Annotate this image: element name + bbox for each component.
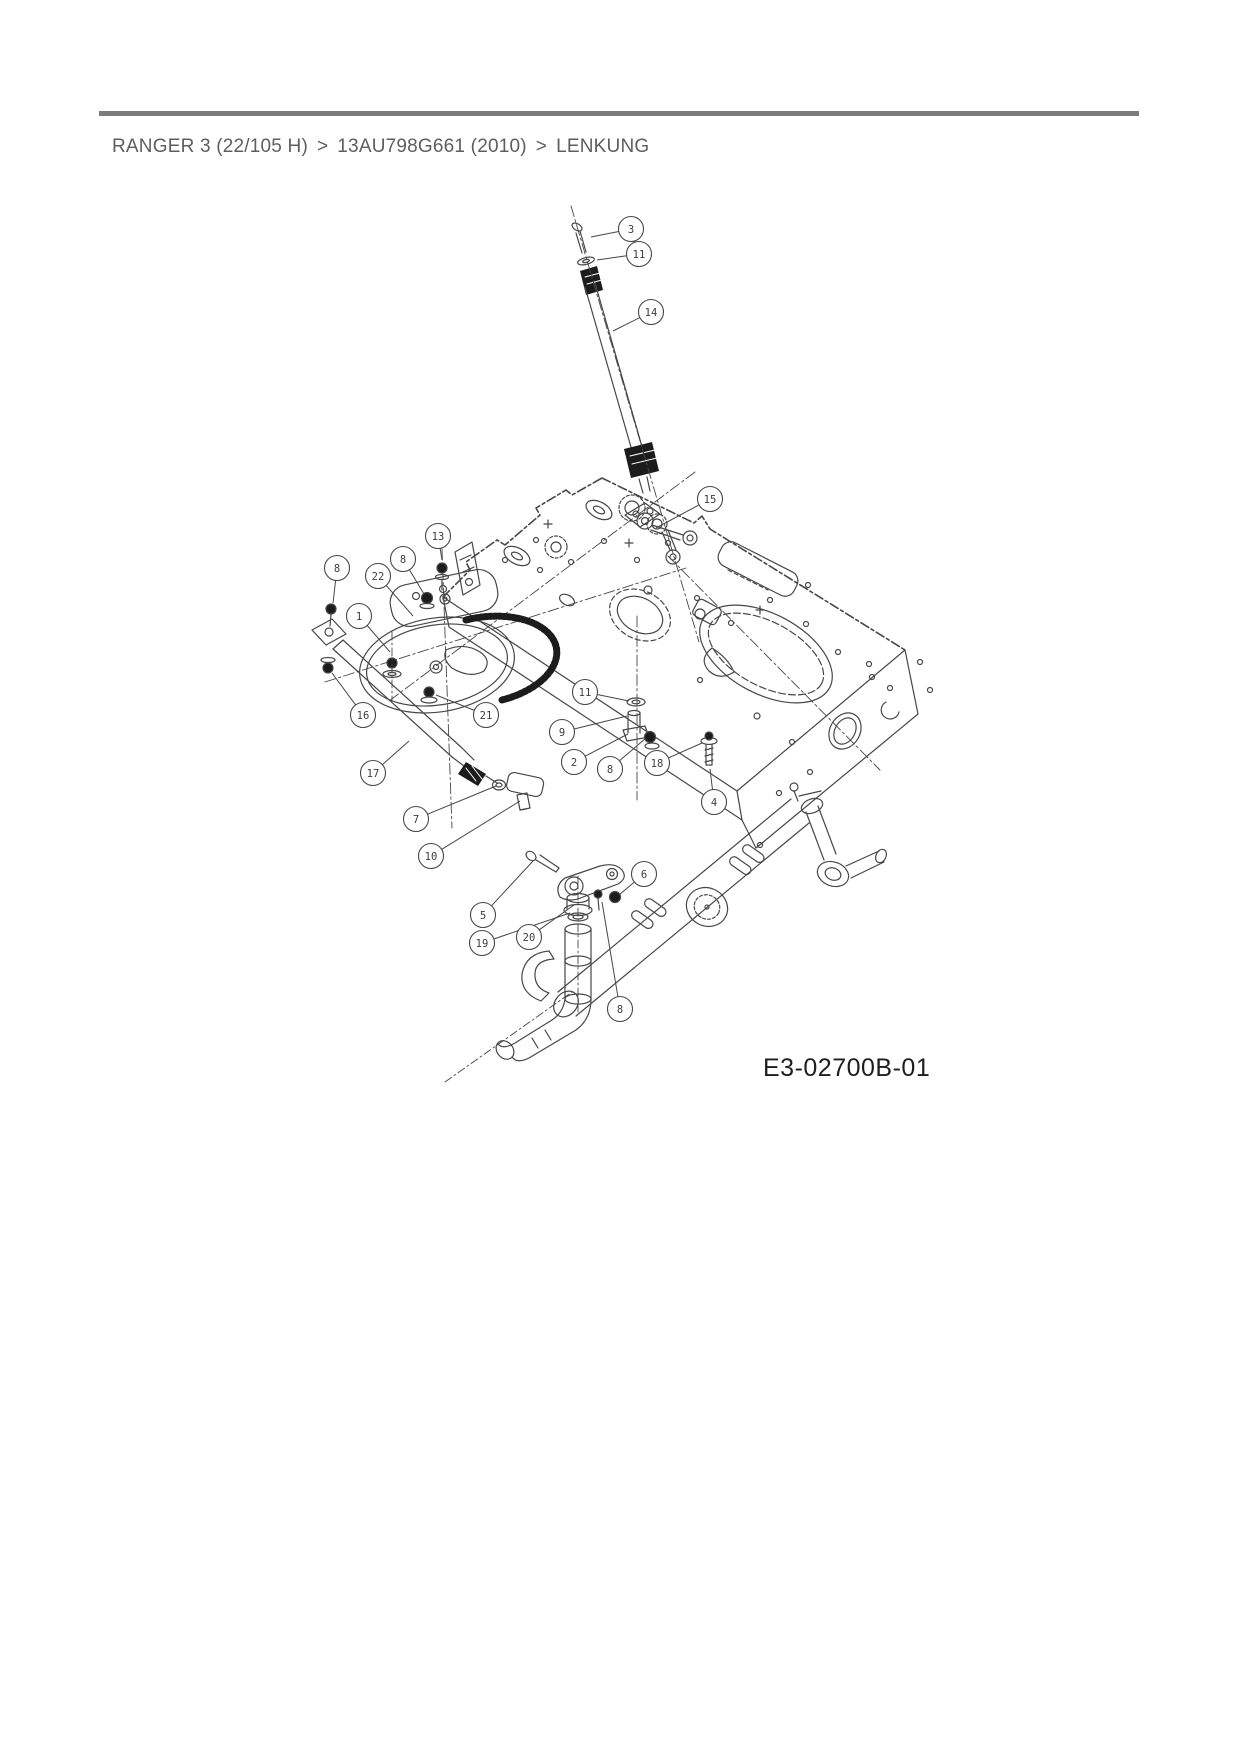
callout-11: 11: [597, 242, 652, 267]
svg-text:21: 21: [480, 710, 493, 722]
svg-text:7: 7: [413, 814, 419, 826]
svg-text:8: 8: [607, 764, 613, 776]
callout-17: 17: [361, 741, 410, 786]
svg-text:16: 16: [357, 710, 370, 722]
drawing-number: E3-02700B-01: [763, 1054, 930, 1083]
svg-text:1: 1: [356, 611, 362, 623]
callout-5: 5: [471, 861, 534, 928]
right-spindle: [790, 783, 888, 891]
exploded-view-drawing: 31114151388221162111928184177106519208: [0, 0, 1240, 1754]
svg-text:6: 6: [641, 869, 647, 881]
svg-text:20: 20: [523, 932, 536, 944]
svg-text:8: 8: [617, 1004, 623, 1016]
svg-text:13: 13: [432, 531, 445, 543]
svg-text:22: 22: [372, 571, 385, 583]
parts-diagram: 31114151388221162111928184177106519208 E…: [0, 0, 1240, 1754]
callout-8: 8: [598, 738, 647, 782]
callout-3: 3: [591, 217, 644, 242]
callout-15: 15: [656, 487, 723, 529]
document-page: RANGER 3 (22/105 H)>13AU798G661 (2010)>L…: [0, 0, 1240, 1754]
svg-text:3: 3: [628, 224, 634, 236]
svg-text:11: 11: [633, 249, 646, 261]
callout-13: 13: [426, 524, 451, 561]
svg-text:10: 10: [425, 851, 438, 863]
svg-text:5: 5: [480, 910, 486, 922]
callout-14: 14: [613, 300, 664, 332]
svg-text:2: 2: [571, 757, 577, 769]
callout-6: 6: [619, 862, 657, 896]
callout-1: 1: [347, 604, 391, 653]
callout-8: 8: [325, 556, 350, 604]
callout-10: 10: [419, 801, 521, 869]
steering-shaft: [571, 206, 699, 642]
svg-text:18: 18: [651, 758, 664, 770]
callout-8: 8: [602, 902, 633, 1022]
svg-text:14: 14: [645, 307, 658, 319]
svg-text:8: 8: [334, 563, 340, 575]
drag-link: [312, 604, 545, 810]
svg-text:11: 11: [579, 687, 592, 699]
svg-text:4: 4: [711, 797, 717, 809]
svg-text:15: 15: [704, 494, 717, 506]
svg-text:17: 17: [367, 768, 380, 780]
chassis-frame: [325, 472, 933, 848]
callout-18: 18: [645, 743, 703, 776]
svg-text:8: 8: [400, 554, 406, 566]
svg-text:19: 19: [476, 938, 489, 950]
svg-text:9: 9: [559, 727, 565, 739]
left-spindle: [445, 849, 624, 1082]
callout-8: 8: [391, 547, 425, 595]
